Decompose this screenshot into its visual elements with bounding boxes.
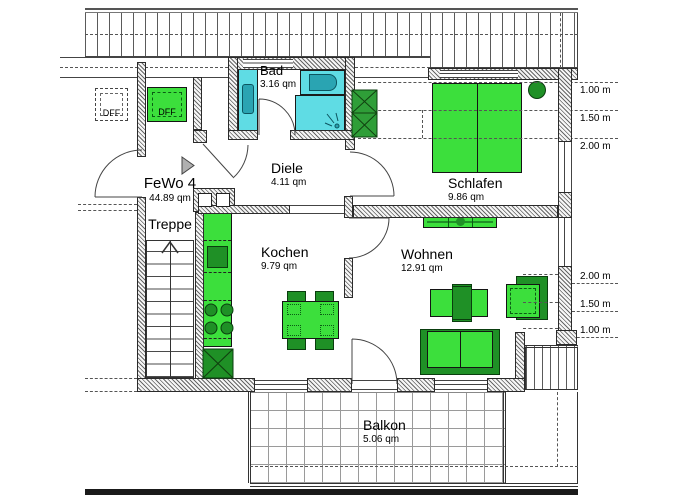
balkon-area: 5.06 qm bbox=[363, 434, 399, 445]
unit-area: 44.89 qm bbox=[140, 193, 200, 204]
dff-right-label: DFF bbox=[147, 108, 187, 118]
direction-arrow-icon bbox=[182, 157, 194, 174]
diele-area: 4.11 qm bbox=[271, 177, 306, 188]
bad-label: Bad bbox=[260, 64, 283, 78]
bad-door-swing bbox=[259, 99, 295, 135]
wohnen-label: Wohnen bbox=[401, 247, 453, 262]
kochen-wohnen-door-swing bbox=[349, 218, 389, 258]
corridor-diele-door-swing bbox=[203, 144, 248, 178]
schlafen-door-swing bbox=[350, 152, 394, 196]
stairs-up-arrow-icon bbox=[162, 242, 178, 253]
kochen-label: Kochen bbox=[261, 245, 308, 260]
meas-bottom-100: 1.00 m bbox=[580, 325, 611, 336]
meas-bottom-200: 2.00 m bbox=[580, 271, 611, 282]
shower-head-icon bbox=[325, 113, 339, 128]
kitchen-sink bbox=[203, 349, 233, 378]
unit-label: FeWo 4 bbox=[140, 176, 200, 193]
meas-top-100: 1.00 m bbox=[580, 85, 611, 96]
entry-door-swing bbox=[95, 150, 142, 197]
floor-plan: FeWo 4 44.89 qm Treppe Bad 3.16 qm Diele… bbox=[0, 0, 700, 500]
balkon-door-swing bbox=[352, 339, 397, 384]
schlafen-area: 9.86 qm bbox=[448, 192, 484, 203]
treppe-label: Treppe bbox=[140, 217, 200, 232]
wardrobe bbox=[352, 90, 377, 137]
diele-label: Diele bbox=[271, 161, 303, 176]
meas-top-200: 2.00 m bbox=[580, 141, 611, 152]
meas-top-150: 1.50 m bbox=[580, 113, 611, 124]
dff-left-label: DFF bbox=[95, 109, 128, 119]
plan-linework bbox=[0, 0, 700, 500]
kitchen-stove-burners bbox=[205, 304, 233, 334]
bad-area: 3.16 qm bbox=[260, 79, 296, 90]
balkon-label: Balkon bbox=[363, 418, 406, 433]
kochen-area: 9.79 qm bbox=[261, 261, 297, 272]
wohnen-area: 12.91 qm bbox=[401, 263, 443, 274]
schlafen-label: Schlafen bbox=[448, 176, 502, 191]
meas-bottom-150: 1.50 m bbox=[580, 299, 611, 310]
